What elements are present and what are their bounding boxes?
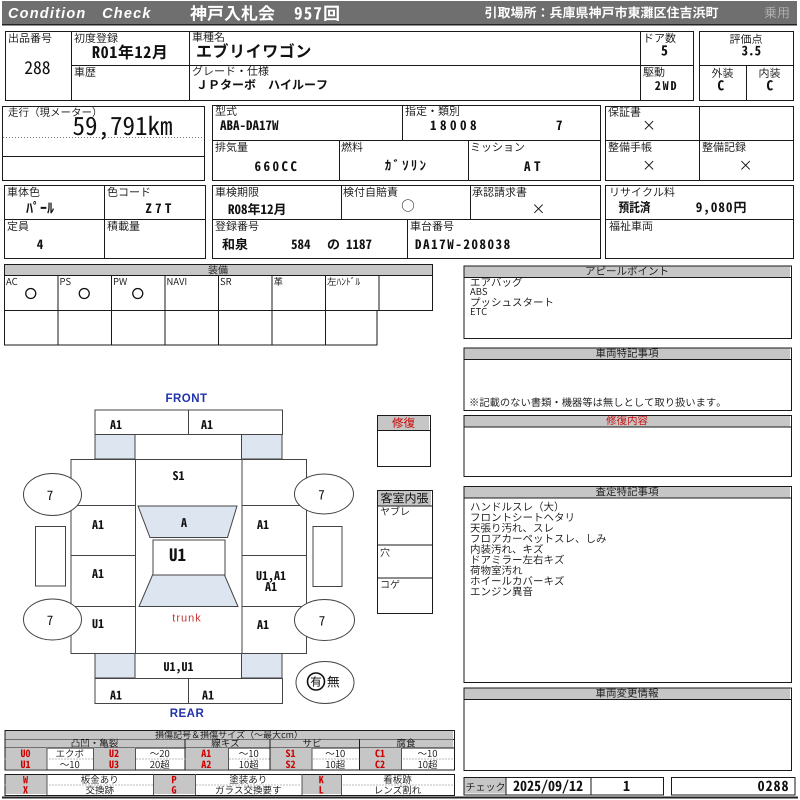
svg-text:FRONT: FRONT: [165, 393, 207, 405]
svg-text:Condition Check: Condition Check: [8, 6, 152, 22]
svg-text:REAR: REAR: [170, 708, 205, 720]
svg-text:trunk: trunk: [172, 613, 201, 625]
